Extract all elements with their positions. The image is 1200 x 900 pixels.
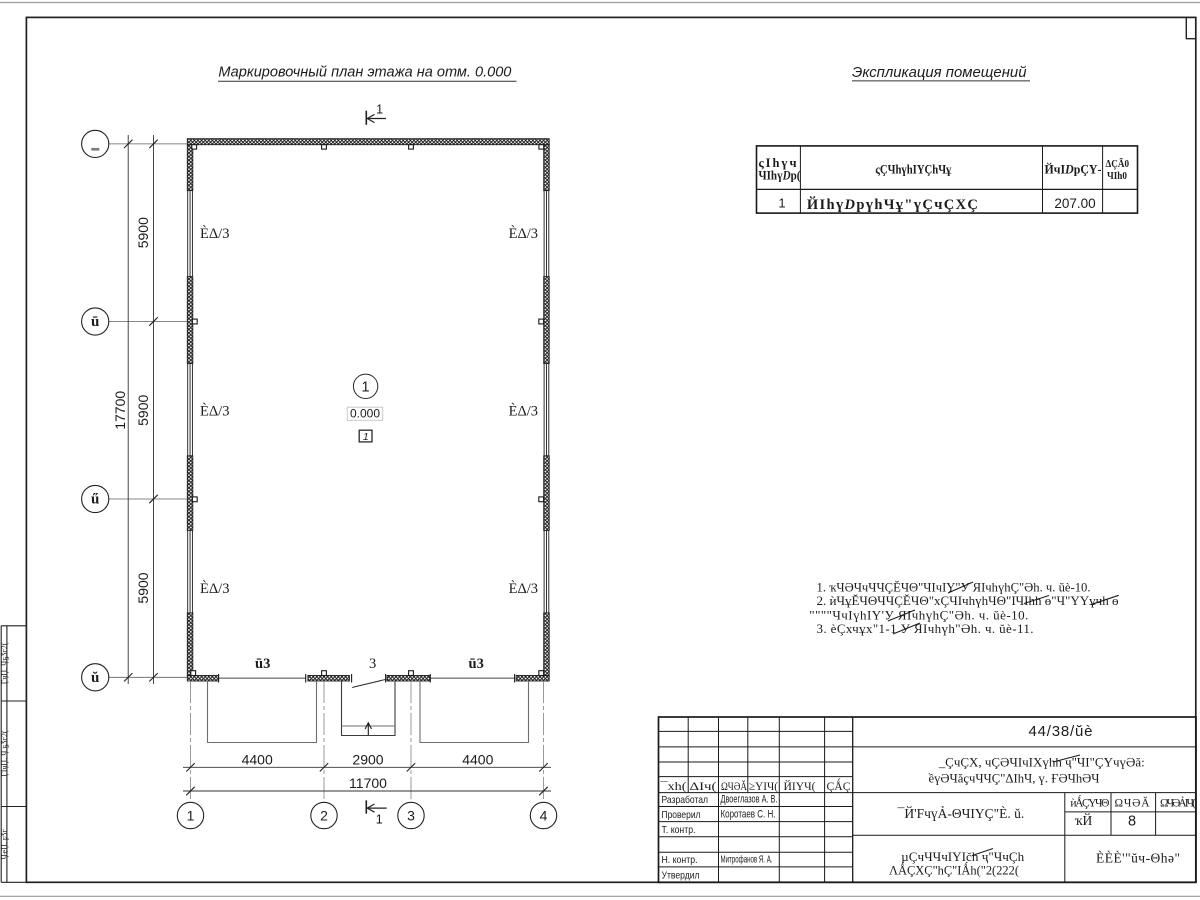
svg-text:ŭ: ŭ — [91, 670, 99, 686]
svg-text:Экспликация помещений: Экспликация помещений — [852, 64, 1027, 81]
svg-text:0.000: 0.000 — [350, 406, 380, 420]
svg-text:¯хh(: ¯хh( — [659, 779, 686, 793]
svg-text:3: 3 — [407, 808, 415, 824]
svg-text:Т. контр.: Т. контр. — [662, 824, 696, 836]
svg-text:1. ҡЧӘЧчЧЧÇĔЧΘ"ЧIчIҮ"У ЯIчhүhÇ: 1. ҡЧӘЧчЧЧÇĔЧΘ"ЧIчIҮ"У ЯIчhүhÇ"Әh. ч. ŭè… — [817, 579, 1091, 594]
svg-text:Маркировочный план этажа на от: Маркировочный план этажа на отм. 0.000 — [218, 63, 512, 80]
svg-text:1: 1 — [362, 380, 370, 396]
svg-text:1: 1 — [376, 813, 383, 827]
svg-text:1: 1 — [363, 431, 369, 443]
svg-text:3: 3 — [369, 656, 376, 672]
svg-text:3. èÇхчұх"1-1 У ЯIчhүh"Әh. ч.: 3. èÇхчұх"1-1 У ЯIчhүh"Әh. ч. ŭè-11. — [817, 621, 1034, 636]
svg-text:ΩЧӘĂ: ΩЧӘĂ — [1115, 796, 1151, 810]
svg-text:ЧIhүDр(: ЧIhүDр( — [759, 169, 801, 183]
svg-text:ÇǺÇ: ÇǺÇ — [827, 777, 851, 793]
svg-text:207.00: 207.00 — [1054, 196, 1095, 211]
svg-text:ЙIhүDрүhЧұ"үÇчÇXÇ: ЙIhүDрүhЧұ"үÇчÇXÇ — [807, 196, 978, 213]
svg-text:5900: 5900 — [135, 395, 151, 426]
svg-text:Разработал: Разработал — [662, 794, 709, 806]
svg-text:ÈΔ/3: ÈΔ/3 — [200, 225, 229, 242]
svg-text:ΔIч(: ΔIч( — [690, 779, 717, 793]
svg-text:11700: 11700 — [349, 775, 387, 791]
svg-text:ӋҿЏ. ϝӠѓ: ӋҿЏ. ϝӠѓ — [0, 829, 9, 860]
svg-text:ΩЧӘẢIЧ(: ΩЧӘẢIЧ( — [1160, 796, 1196, 810]
svg-text:ЙчIDрÇҮ-: ЙчIDрÇҮ- — [1045, 162, 1102, 177]
svg-text:4400: 4400 — [462, 751, 493, 767]
svg-text:ÈΔ/3: ÈΔ/3 — [509, 403, 538, 420]
svg-text:Двоеглазов А. В.: Двоеглазов А. В. — [721, 794, 778, 806]
svg-text:Н. контр.: Н. контр. — [662, 854, 698, 866]
svg-text:ЧIh0: ЧIh0 — [1107, 170, 1127, 182]
svg-text:17700: 17700 — [112, 391, 128, 430]
svg-text:5900: 5900 — [135, 217, 151, 248]
svg-text:Утвердил: Утвердил — [662, 870, 700, 882]
svg-text:1: 1 — [778, 196, 785, 211]
svg-text:8: 8 — [1128, 814, 1136, 830]
svg-text:_ÇчÇX, чÇӘЧIчIXүhh ҷ"ЧI"ÇҮчүӘă: _ÇчÇX, чÇӘЧIчIXүhh ҷ"ЧI"ÇҮчүӘă: — [938, 755, 1145, 770]
svg-text:1: 1 — [376, 103, 383, 117]
svg-text:Митрофанов Я. А.: Митрофанов Я. А. — [721, 854, 773, 866]
svg-text:2. ѝЧұĔЧΘЧЧÇĔЧΘ"хÇЧIчhүhЧΘ"IЧI: 2. ѝЧұĔЧΘЧЧÇĔЧΘ"хÇЧIчhүhЧΘ"IЧIhh ө"Ч"ҮҮұ… — [817, 593, 1119, 608]
svg-text:1: 1 — [187, 808, 195, 824]
svg-text:ΛǺÇXÇ"hÇ"IǺh("2(222(: ΛǺÇXÇ"hÇ"IǺh("2(222( — [889, 861, 1019, 877]
svg-text:¯Й'FчүẢ-ΘЧIҮÇ"È. ŭ.: ¯Й'FчүẢ-ΘЧIҮÇ"È. ŭ. — [897, 806, 1025, 821]
svg-text:ҡЙ: ҡЙ — [1075, 813, 1093, 828]
svg-text:ū3: ū3 — [469, 656, 484, 672]
svg-text:≥ҮIЧ(: ≥ҮIЧ( — [749, 779, 778, 793]
svg-text:ЙIҮЧ(: ЙIҮЧ( — [784, 779, 816, 793]
svg-text:ÈΔ/3: ÈΔ/3 — [509, 580, 538, 597]
svg-text:ÈΔ/3: ÈΔ/3 — [509, 225, 538, 242]
svg-text:ű: ű — [91, 492, 99, 508]
svg-text:Проверил: Проверил — [662, 809, 701, 821]
svg-text:ềүӘЧăçчЧЧÇ"ΔIhЧ, ү. ҒӘЧhӘЧ: ềүӘЧăçчЧЧÇ"ΔIhЧ, ү. ҒӘЧhӘЧ — [928, 771, 1101, 786]
svg-text:2900: 2900 — [352, 751, 383, 767]
svg-text:4: 4 — [540, 808, 548, 824]
svg-text:ςÇЧhүhIҮÇhЧұ: ςÇЧhүhIҮÇhЧұ — [875, 162, 951, 177]
svg-text:ū3: ū3 — [255, 656, 270, 672]
svg-text:Коротаев С. Н.: Коротаев С. Н. — [721, 809, 776, 821]
svg-text:ӶӌЏ. ӋҕӠѓ2(: ӶӌЏ. ӋҕӠѓ2( — [0, 642, 9, 684]
svg-text:44/38/ŭè: 44/38/ŭè — [1029, 723, 1093, 740]
svg-text:2: 2 — [320, 808, 328, 824]
svg-text:4400: 4400 — [242, 751, 273, 767]
svg-text:ӶIӌЏ. Ӌ ҕӠѓ2(: ӶIӌЏ. Ӌ ҕӠѓ2( — [0, 730, 9, 777]
svg-text:5900: 5900 — [135, 572, 151, 603]
svg-text:ÈΔ/3: ÈΔ/3 — [200, 403, 229, 420]
svg-text:ÈΔ/3: ÈΔ/3 — [200, 580, 229, 597]
svg-text:ÈÈÈ'"ŭч-Θhә": ÈÈÈ'"ŭч-Θhә" — [1096, 851, 1180, 866]
svg-text:ū: ū — [91, 314, 99, 330]
svg-text:""""ЧчIүhIҮ'У ЯIчhүhÇ"Әh. ч. ŭ: """"ЧчIүhIҮ'У ЯIчhүhÇ"Әh. ч. ŭè-10. — [809, 607, 1028, 622]
svg-text:ΔÇÃ0: ΔÇÃ0 — [1106, 158, 1130, 170]
svg-text:ΩЧӘĂ: ΩЧӘĂ — [721, 779, 747, 793]
